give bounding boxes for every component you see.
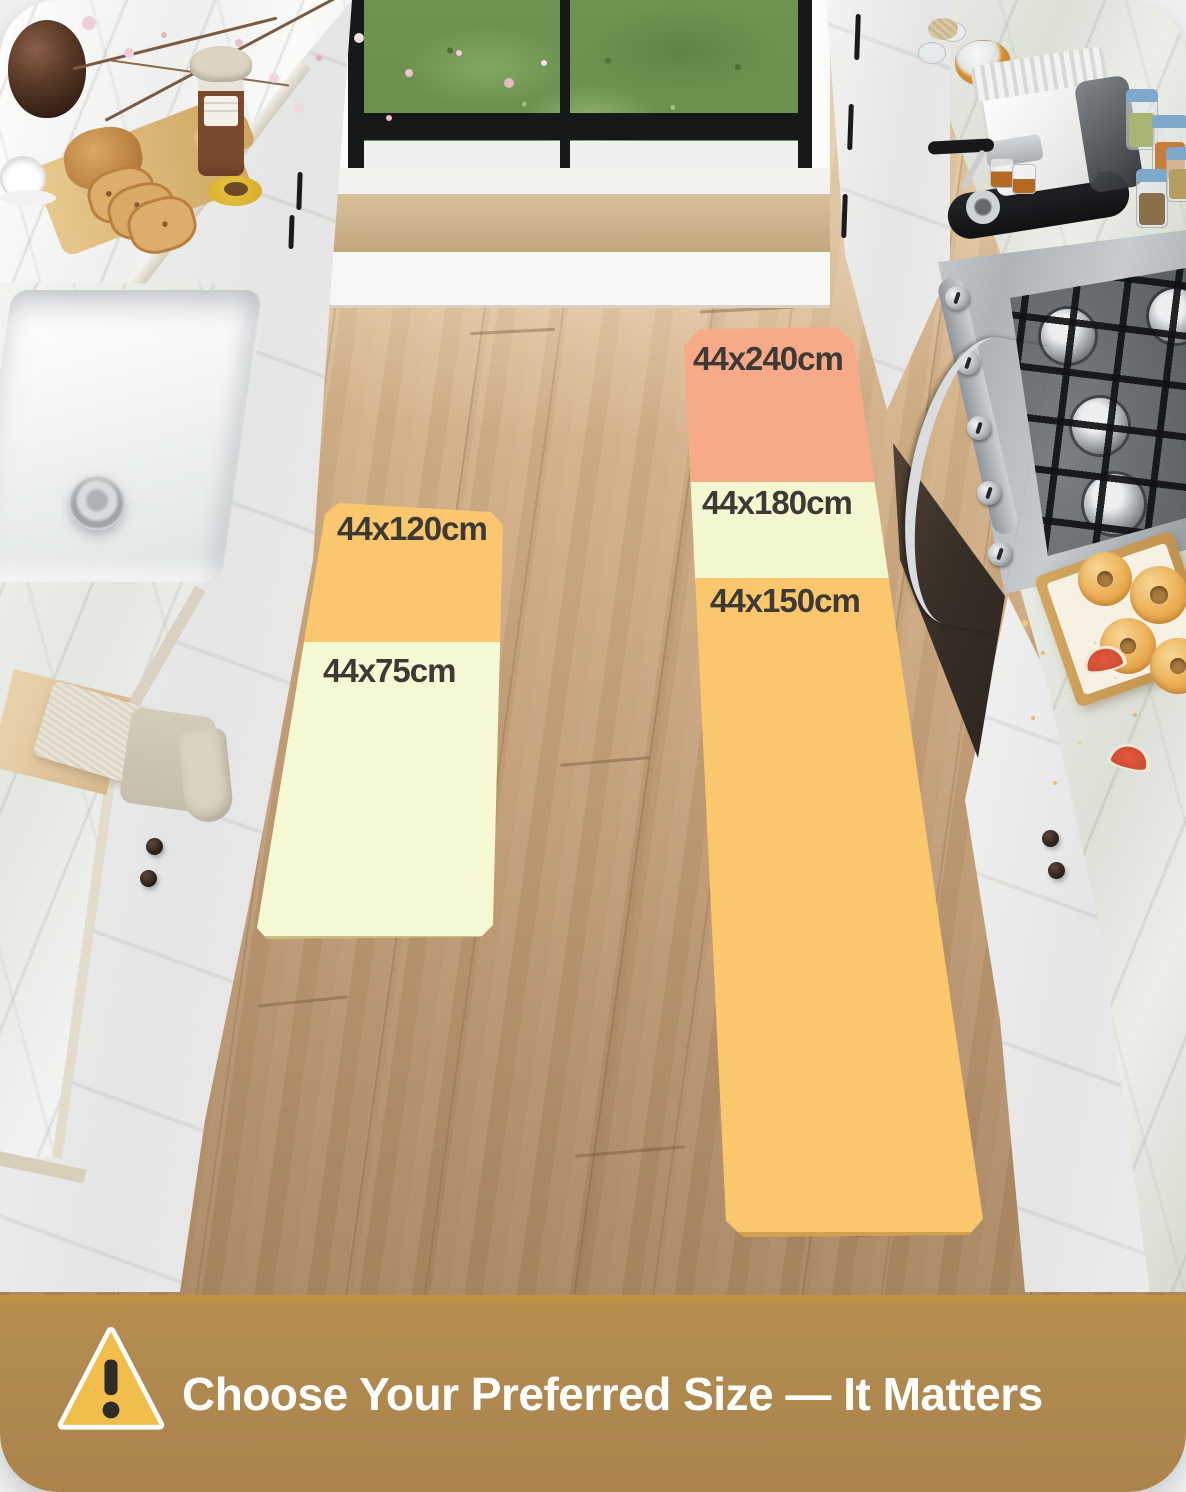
gas-burner <box>1084 474 1144 534</box>
size-choice-banner: Choose Your Preferred Size — It Matters <box>0 1295 1186 1492</box>
oat-crumbs <box>1022 620 1028 626</box>
twine-ball <box>928 18 958 40</box>
steam-wand <box>960 149 986 191</box>
glass-cup <box>918 42 946 64</box>
gas-burner <box>1072 398 1128 454</box>
window-sill <box>330 168 830 196</box>
size-label-44x150: 44x150cm <box>710 582 860 620</box>
spice-jar <box>1136 170 1168 228</box>
espresso-glass <box>990 158 1014 188</box>
window-frame-left <box>348 0 364 168</box>
window-frame-right <box>798 0 812 168</box>
donut <box>1130 566 1186 624</box>
product-card: 44x120cm 44x75cm 44x240cm 44x180cm 44x15… <box>0 0 1186 1492</box>
drip-tray <box>966 190 1000 224</box>
warning-triangle-icon <box>55 1320 167 1444</box>
espresso-station <box>900 0 1186 252</box>
window-wood-ledge <box>330 194 830 252</box>
saucer <box>0 190 56 206</box>
window-mullion <box>560 0 570 168</box>
dish-contents <box>224 182 248 196</box>
size-label-44x240: 44x240cm <box>693 340 843 378</box>
baseboard <box>330 252 830 308</box>
espresso-glass <box>1012 164 1036 194</box>
cherry-blossoms <box>82 16 96 30</box>
gas-burner <box>1149 289 1186 343</box>
jam-jar-label <box>204 96 238 126</box>
farmhouse-sink <box>0 290 262 582</box>
donut <box>1078 552 1132 606</box>
jam-jar-cloth-lid <box>190 46 252 82</box>
cabinet-knob <box>146 838 163 855</box>
stove-knob <box>945 286 969 310</box>
spice-jar <box>1166 148 1186 202</box>
sink-drain <box>70 476 124 530</box>
cabinet-knob <box>1042 830 1059 847</box>
size-label-44x180: 44x180cm <box>702 484 852 522</box>
size-label-44x120: 44x120cm <box>337 510 487 548</box>
kitchen-window-wall <box>330 0 830 305</box>
size-label-44x75: 44x75cm <box>323 652 455 690</box>
cabinet-knob <box>1048 862 1065 879</box>
banner-text: Choose Your Preferred Size — It Matters <box>182 1367 1043 1421</box>
window-rail <box>348 113 812 140</box>
cabinet-knob <box>140 870 157 887</box>
window-lower-pane <box>348 141 812 168</box>
gas-range <box>880 222 1186 806</box>
